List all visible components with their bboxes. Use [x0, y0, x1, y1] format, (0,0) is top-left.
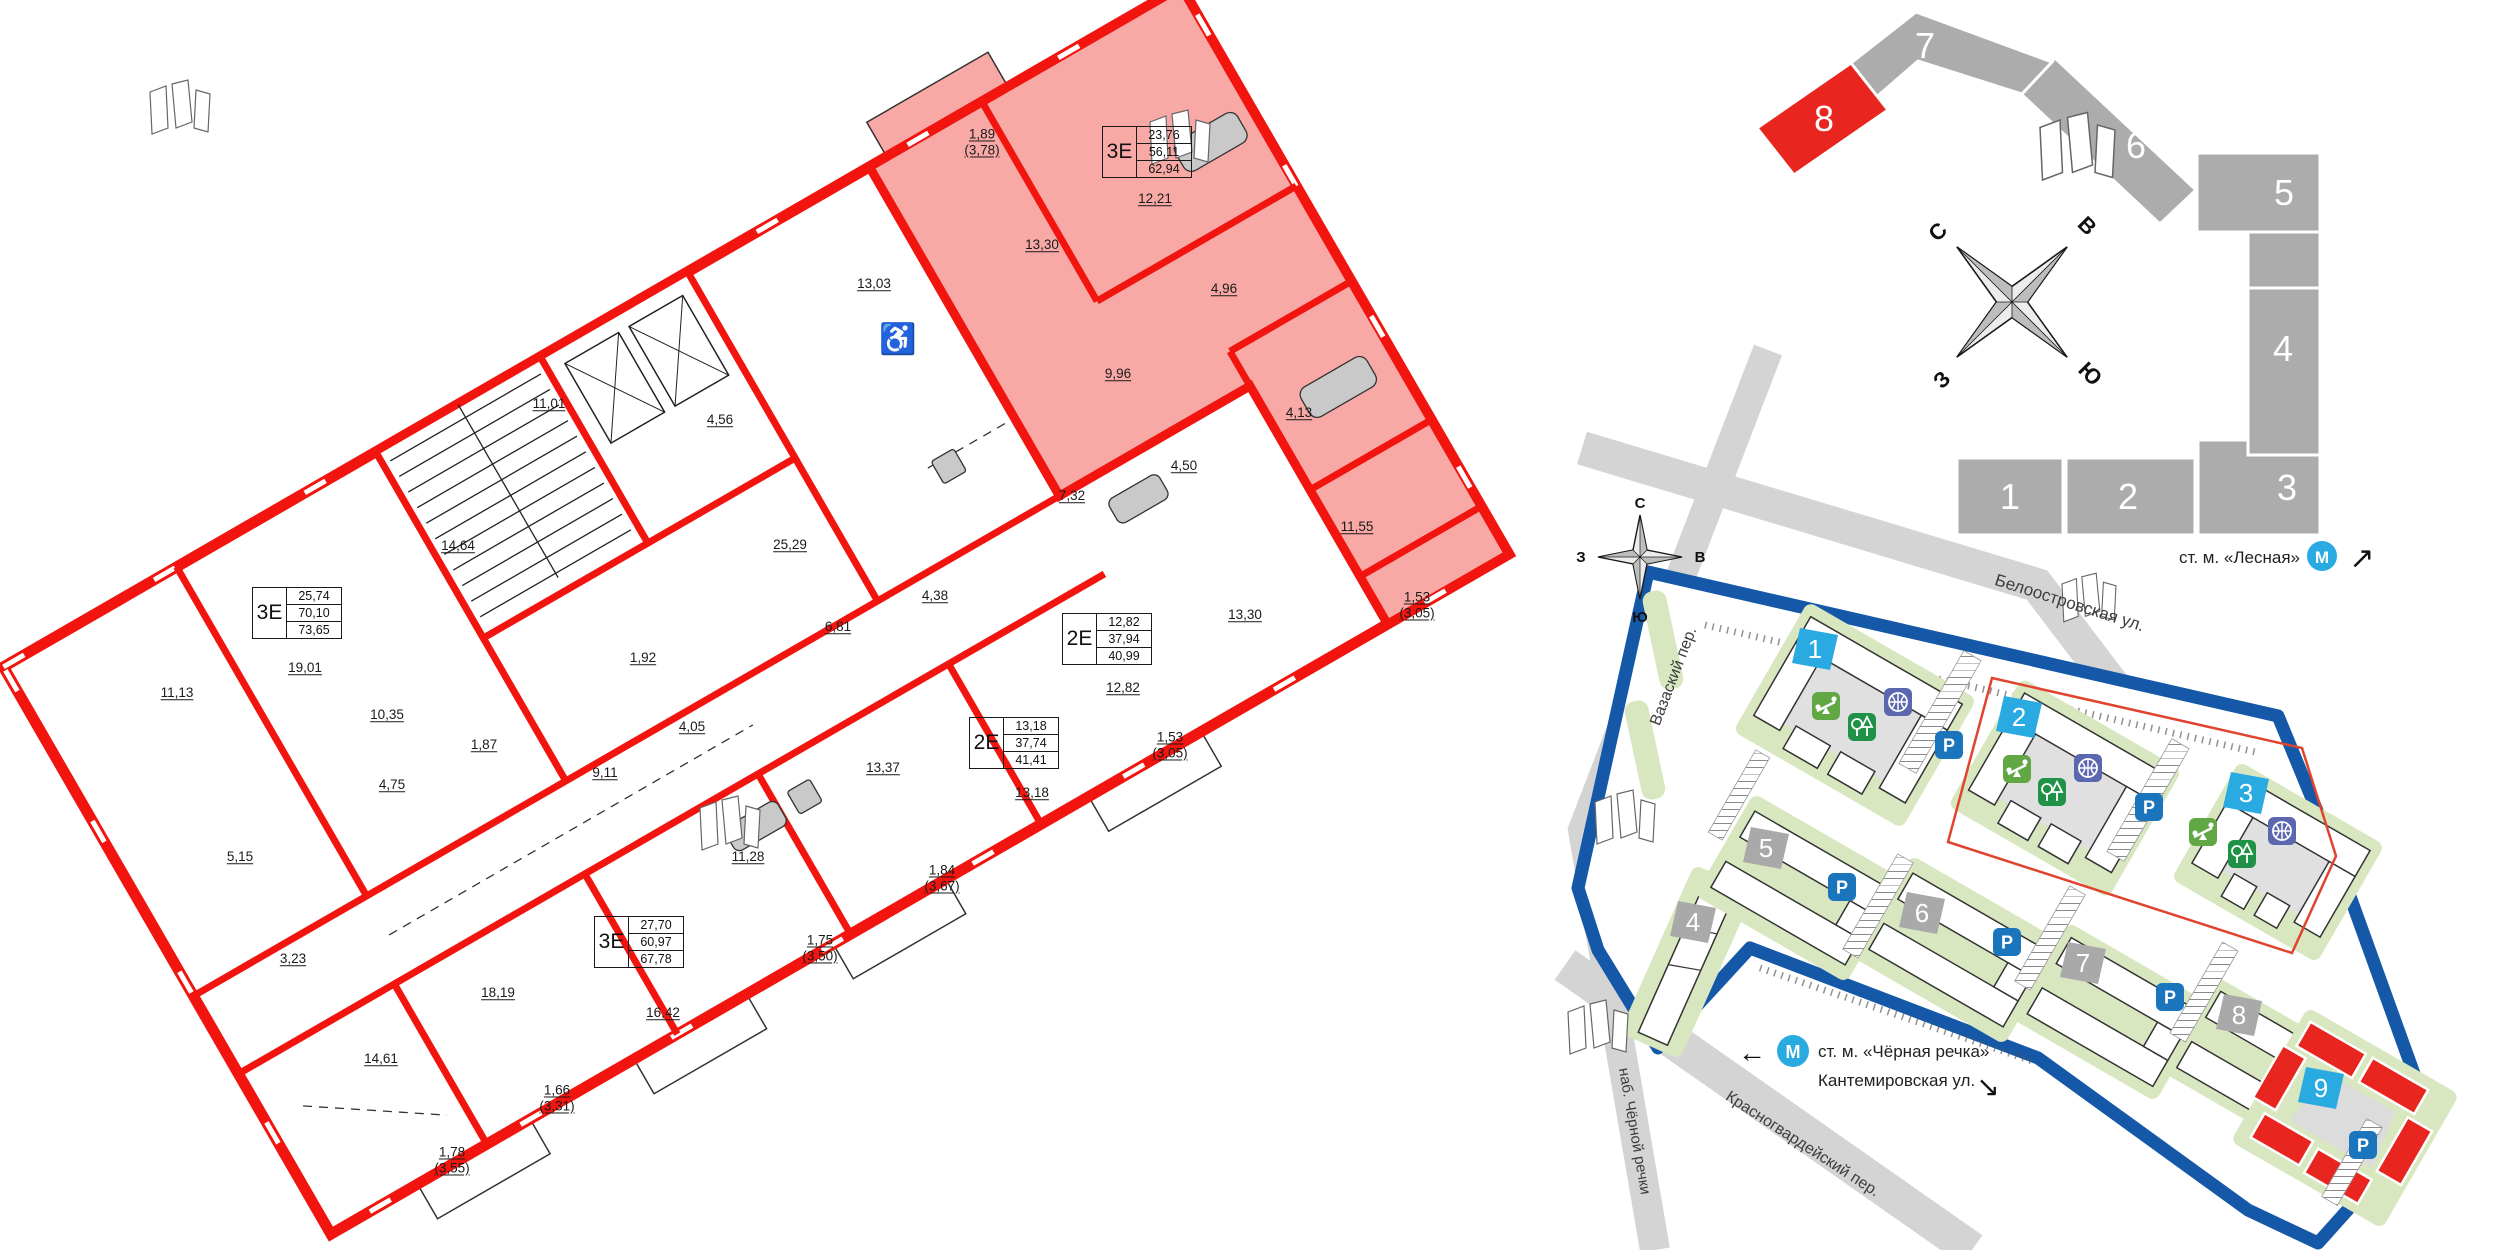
compass-south: Ю	[1632, 609, 1647, 626]
diagram-section-1[interactable]: 1	[1957, 458, 2063, 535]
metro-station-label: ст. м. «Чёрная речка»	[1818, 1042, 1989, 1061]
parking-icon: Р	[2135, 793, 2163, 821]
map-building-marker-3[interactable]: 3	[2223, 772, 2269, 814]
playground-icon	[2003, 755, 2031, 783]
adjacent-building-sketch	[150, 80, 210, 134]
map-building-marker-4[interactable]: 4	[1670, 901, 1716, 943]
section-number: 2	[2118, 476, 2138, 517]
trees-icon	[2038, 778, 2066, 806]
marker-number: 2	[2012, 702, 2026, 732]
parking-icon: Р	[1993, 928, 2021, 956]
compass-west: З	[1928, 366, 1955, 393]
playground-icon	[1812, 692, 1840, 720]
map-building-marker-5[interactable]: 5	[1743, 827, 1789, 869]
trees-icon	[1848, 713, 1876, 741]
map-building-marker-8[interactable]: 8	[2216, 994, 2262, 1036]
marker-number: 3	[2239, 778, 2253, 808]
trees-icon	[2228, 840, 2256, 868]
metro-station-label: ст. м. «Лесная»	[2179, 548, 2300, 567]
floor-plan: ♿	[0, 0, 1529, 1250]
parking-icon: Р	[2156, 983, 2184, 1011]
section-number: 7	[1915, 25, 1935, 66]
arrow-upright-icon: ↗	[2349, 542, 2374, 575]
wheelchair-icon: ♿	[879, 321, 916, 356]
marker-number: 4	[1686, 907, 1700, 937]
svg-text:Р: Р	[1836, 878, 1848, 898]
map-building-marker-6[interactable]: 6	[1899, 892, 1945, 934]
building-diagram: 12345678 С В З Ю ст. м. «Лесная» М ↗	[1757, 12, 2375, 575]
parking-icon: Р	[1935, 731, 1963, 759]
plan-graphics: ♿ РРРРРР 123456789	[0, 0, 2500, 1250]
compass-north: С	[1635, 495, 1646, 512]
svg-text:Р: Р	[2357, 1136, 2369, 1156]
section-number: 4	[2273, 328, 2293, 369]
diagram-section-2[interactable]: 2	[2066, 458, 2195, 535]
metro-lesnaya: ст. м. «Лесная» М ↗	[2179, 541, 2375, 575]
floorplan-page: ♿ РРРРРР 123456789	[0, 0, 2500, 1250]
marker-number: 9	[2314, 1073, 2328, 1103]
diagram-section-7[interactable]: 7	[1842, 12, 2052, 101]
parking-icon: Р	[2349, 1131, 2377, 1159]
basketball-icon	[2268, 817, 2296, 845]
section-number: 8	[1814, 98, 1834, 139]
svg-text:Р: Р	[1943, 736, 1955, 756]
diagram-section-4[interactable]: 4	[2248, 288, 2320, 455]
map-building-marker-1[interactable]: 1	[1792, 628, 1838, 670]
marker-number: 6	[1915, 898, 1929, 928]
kantemirovskaya-label: Кантемировская ул.	[1818, 1071, 1975, 1090]
compass-east: В	[2073, 211, 2102, 240]
svg-text:Р: Р	[2001, 933, 2013, 953]
svg-text:Р: Р	[2143, 798, 2155, 818]
arrow-left-icon: ←	[1738, 1037, 1766, 1068]
diagram-section-5[interactable]: 5	[2197, 153, 2320, 288]
map-building-marker-7[interactable]: 7	[2060, 942, 2106, 984]
section-number: 3	[2277, 467, 2297, 508]
compass-east: В	[1695, 549, 1706, 566]
basketball-icon	[2074, 754, 2102, 782]
marker-number: 7	[2076, 948, 2090, 978]
basketball-icon	[1884, 688, 1912, 716]
diagram-compass: С В З Ю	[1902, 192, 2123, 413]
marker-number: 8	[2232, 1000, 2246, 1030]
section-number: 5	[2274, 172, 2294, 213]
marker-number: 1	[1808, 634, 1822, 664]
metro-logo: М	[2315, 548, 2329, 567]
compass-north: С	[1923, 217, 1952, 246]
street-label-krasnogvardeysky: Красногвардейский пер.	[1722, 1088, 1882, 1200]
playground-icon	[2189, 818, 2217, 846]
section-number: 1	[2000, 476, 2020, 517]
metro-logo: М	[1786, 1042, 1801, 1062]
compass-south: Ю	[2073, 357, 2107, 391]
map-building-marker-9[interactable]: 9	[2298, 1067, 2344, 1109]
map-building-marker-2[interactable]: 2	[1996, 696, 2042, 738]
compass-west: З	[1576, 549, 1585, 566]
arrow-downright-icon: ↘	[1976, 1071, 1999, 1102]
section-number: 6	[2126, 125, 2146, 166]
parking-icon: Р	[1828, 873, 1856, 901]
marker-number: 5	[1759, 833, 1773, 863]
svg-text:Р: Р	[2164, 988, 2176, 1008]
